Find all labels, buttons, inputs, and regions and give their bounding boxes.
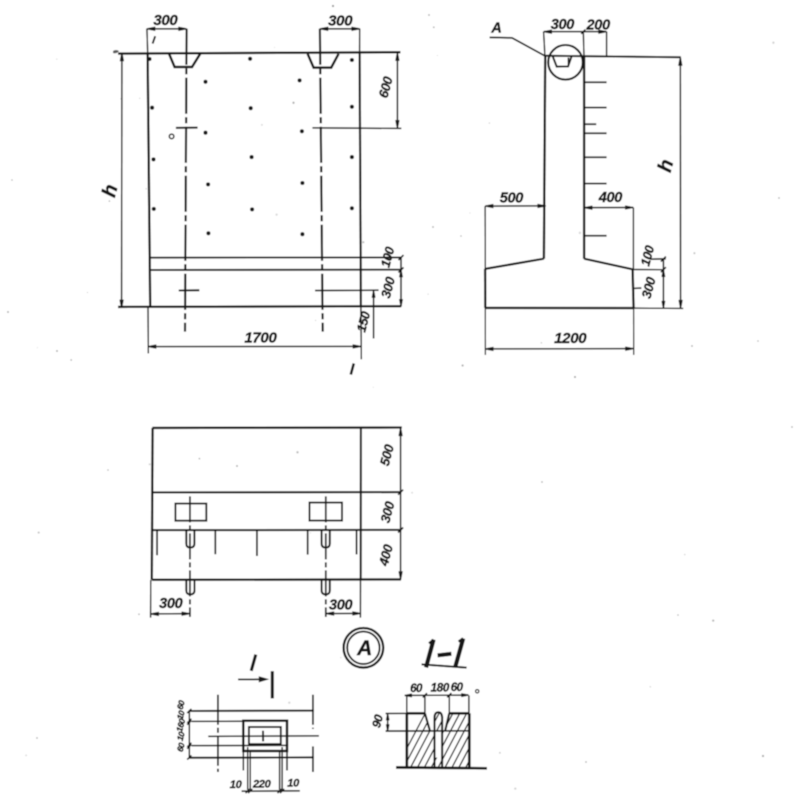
svg-text:300: 300 [329, 597, 353, 613]
svg-text:60: 60 [410, 683, 423, 695]
svg-text:500: 500 [500, 191, 524, 207]
svg-text:A: A [356, 637, 372, 660]
svg-text:1200: 1200 [554, 330, 587, 347]
svg-text:10: 10 [230, 779, 243, 791]
svg-text:A: A [490, 21, 501, 37]
svg-text:1700: 1700 [244, 329, 277, 346]
svg-text:300: 300 [159, 596, 183, 612]
svg-text:60: 60 [451, 682, 464, 694]
svg-text:300: 300 [551, 17, 575, 33]
svg-text:180: 180 [431, 683, 450, 695]
svg-text:400: 400 [598, 190, 623, 206]
svg-text:220: 220 [252, 779, 272, 791]
svg-text:300: 300 [328, 13, 353, 30]
svg-text:10: 10 [287, 777, 300, 789]
svg-text:300: 300 [153, 12, 178, 29]
svg-text:200: 200 [586, 18, 611, 34]
